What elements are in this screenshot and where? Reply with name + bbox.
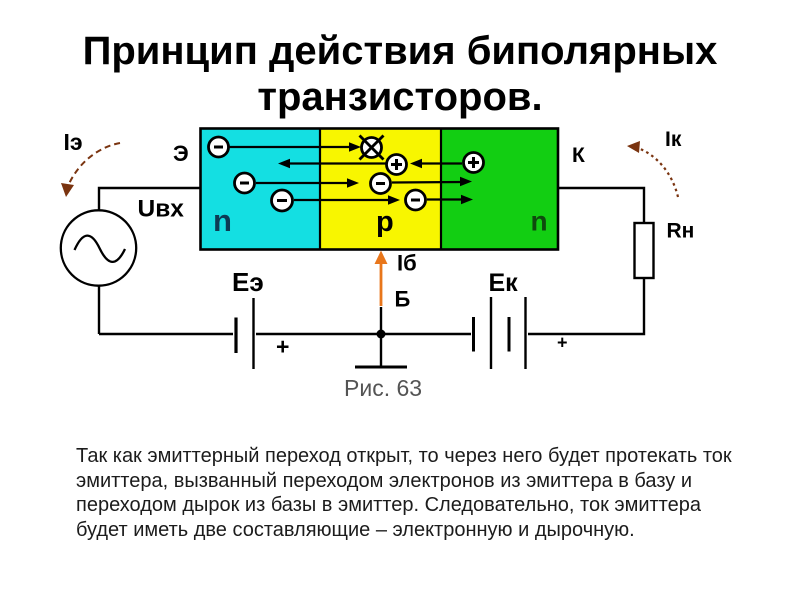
svg-text:Eк: Eк (489, 269, 519, 297)
svg-text:Б: Б (395, 287, 411, 312)
svg-text:Рис. 63: Рис. 63 (344, 375, 422, 401)
svg-text:n: n (213, 203, 232, 238)
svg-text:+: + (276, 334, 289, 360)
svg-text:Rн: Rн (667, 220, 695, 243)
svg-text:Iэ: Iэ (64, 129, 83, 155)
svg-text:К: К (572, 144, 585, 167)
svg-text:p: p (376, 206, 394, 238)
svg-text:Uвх: Uвх (138, 196, 185, 223)
svg-text:Iк: Iк (665, 128, 682, 151)
svg-text:Э: Э (173, 141, 189, 166)
svg-text:Eэ: Eэ (232, 267, 264, 297)
svg-text:n: n (531, 206, 548, 237)
svg-text:Iб: Iб (397, 251, 417, 276)
svg-text:+: + (557, 333, 568, 353)
